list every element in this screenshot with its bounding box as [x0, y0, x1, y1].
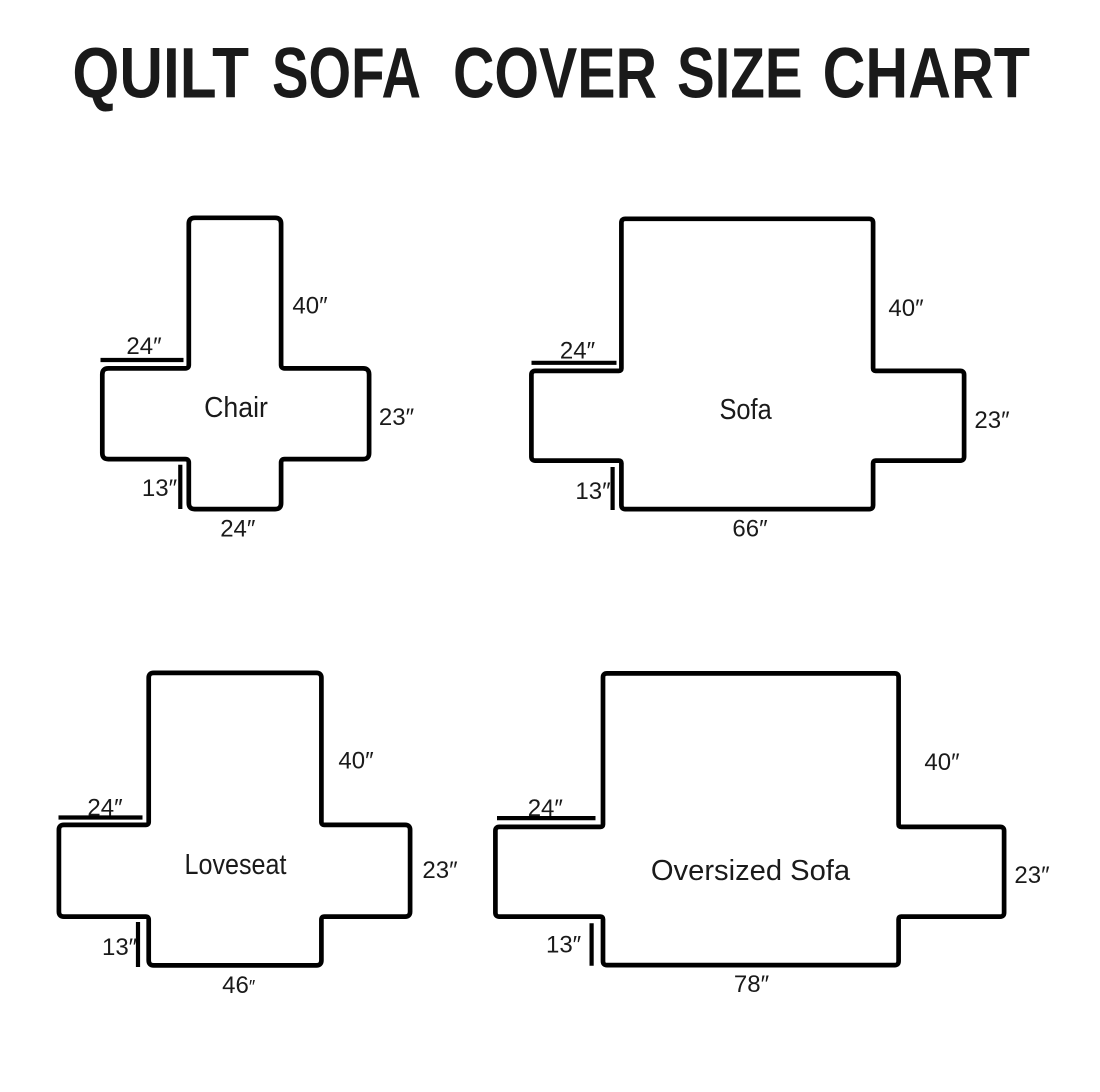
svg-text:40″: 40″ [292, 293, 328, 320]
svg-text:78″: 78″ [734, 971, 770, 998]
svg-text:46″: 46″ [222, 972, 256, 999]
svg-text:24″: 24″ [528, 795, 564, 822]
svg-text:13″: 13″ [546, 932, 582, 959]
svg-text:Chair: Chair [204, 392, 268, 424]
svg-text:Oversized Sofa: Oversized Sofa [651, 855, 851, 887]
svg-text:QUILT: QUILT [72, 35, 249, 114]
svg-text:23″: 23″ [379, 404, 415, 431]
svg-text:SIZE: SIZE [677, 35, 803, 114]
svg-text:13″: 13″ [575, 478, 611, 505]
svg-text:SOFA: SOFA [272, 35, 421, 114]
svg-text:13″: 13″ [102, 934, 138, 961]
svg-text:Sofa: Sofa [719, 394, 772, 426]
svg-text:40″: 40″ [338, 748, 374, 775]
svg-text:40″: 40″ [924, 749, 960, 776]
svg-text:24″: 24″ [220, 516, 256, 543]
svg-text:23″: 23″ [422, 857, 458, 884]
svg-text:24″: 24″ [87, 795, 123, 822]
svg-text:66″: 66″ [732, 516, 768, 543]
svg-text:40″: 40″ [888, 295, 924, 322]
svg-text:COVER: COVER [453, 35, 657, 114]
svg-text:23″: 23″ [974, 407, 1010, 434]
svg-text:13″: 13″ [142, 475, 178, 502]
svg-text:24″: 24″ [126, 333, 162, 360]
svg-text:Loveseat: Loveseat [185, 849, 287, 881]
svg-text:23″: 23″ [1014, 862, 1050, 889]
svg-text:24″: 24″ [560, 338, 596, 365]
svg-text:CHART: CHART [823, 35, 1030, 114]
